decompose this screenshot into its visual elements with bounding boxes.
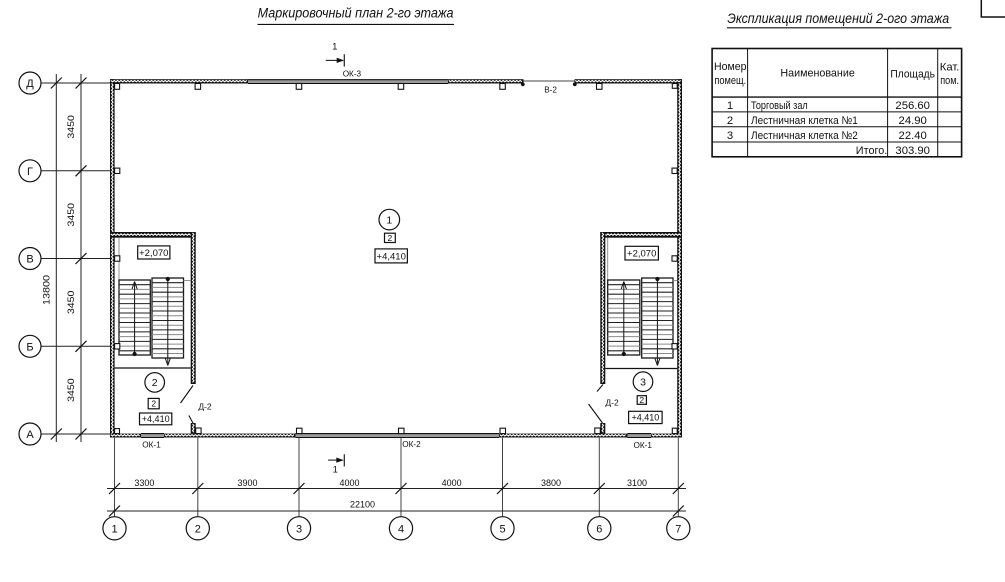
svg-text:1: 1 [386,214,392,226]
svg-text:Экспликация помещений 2-ого эт: Экспликация помещений 2-ого этажа [727,11,949,27]
svg-text:2: 2 [639,395,644,405]
svg-text:2: 2 [727,115,733,127]
svg-text:Д-2: Д-2 [198,402,212,412]
svg-text:ОК-1: ОК-1 [142,441,161,450]
svg-text:ОК-3: ОК-3 [343,70,362,79]
svg-text:3450: 3450 [66,203,76,227]
svg-text:ОК-2: ОК-2 [402,440,421,449]
svg-text:22.40: 22.40 [899,130,927,142]
svg-text:1: 1 [111,523,117,535]
svg-text:Кат.: Кат. [940,62,960,74]
svg-text:В: В [26,254,33,266]
svg-text:А: А [26,429,34,441]
svg-text:помещ.: помещ. [714,75,746,87]
svg-text:3450: 3450 [66,115,76,138]
svg-text:3: 3 [640,377,646,389]
svg-text:1: 1 [332,41,337,52]
svg-text:Номер: Номер [714,61,747,73]
svg-text:22100: 22100 [350,499,375,509]
svg-text:3450: 3450 [66,378,76,402]
svg-text:6: 6 [596,523,602,535]
svg-text:+2,070: +2,070 [139,248,168,259]
svg-text:3: 3 [727,130,733,142]
svg-text:Б: Б [26,341,33,353]
svg-text:13800: 13800 [42,275,52,305]
svg-text:Торговый зал: Торговый зал [751,100,808,112]
svg-text:3450: 3450 [66,291,76,315]
svg-text:Лестничная клетка №1: Лестничная клетка №1 [751,115,858,127]
svg-text:Д: Д [26,78,34,90]
svg-text:Г: Г [27,166,33,178]
svg-text:7: 7 [675,523,681,535]
svg-text:1: 1 [333,464,338,475]
svg-text:3900: 3900 [237,478,257,488]
svg-text:+4,410: +4,410 [142,414,170,424]
svg-text:5: 5 [499,523,505,535]
svg-text:Д-2: Д-2 [605,397,619,407]
svg-text:24.90: 24.90 [899,115,927,127]
svg-text:3100: 3100 [627,478,647,488]
svg-text:2: 2 [388,233,393,243]
svg-text:Итого.: Итого. [856,145,888,157]
svg-text:+2,070: +2,070 [627,249,656,260]
svg-text:1: 1 [727,100,733,112]
svg-text:ОК-1: ОК-1 [633,441,652,450]
svg-text:303.90: 303.90 [895,145,930,157]
svg-text:Маркировочный план 2-го этажа: Маркировочный план 2-го этажа [258,6,454,22]
svg-text:2: 2 [151,399,156,409]
svg-text:3: 3 [296,523,302,535]
svg-text:Наименование: Наименование [780,68,854,80]
svg-text:4: 4 [398,523,404,535]
svg-text:4000: 4000 [442,478,462,488]
svg-text:3800: 3800 [541,478,561,488]
svg-text:4000: 4000 [339,478,359,488]
svg-text:Лестничная клетка №2: Лестничная клетка №2 [751,130,858,142]
svg-text:3300: 3300 [134,478,154,488]
svg-text:пом.: пом. [940,75,959,87]
svg-text:+4,410: +4,410 [377,251,406,262]
svg-text:+4,410: +4,410 [632,413,660,423]
svg-text:2: 2 [152,377,158,389]
svg-text:Площадь: Площадь [890,69,935,81]
svg-text:В-2: В-2 [544,85,557,94]
svg-text:2: 2 [195,523,201,535]
svg-text:256.60: 256.60 [895,100,930,112]
